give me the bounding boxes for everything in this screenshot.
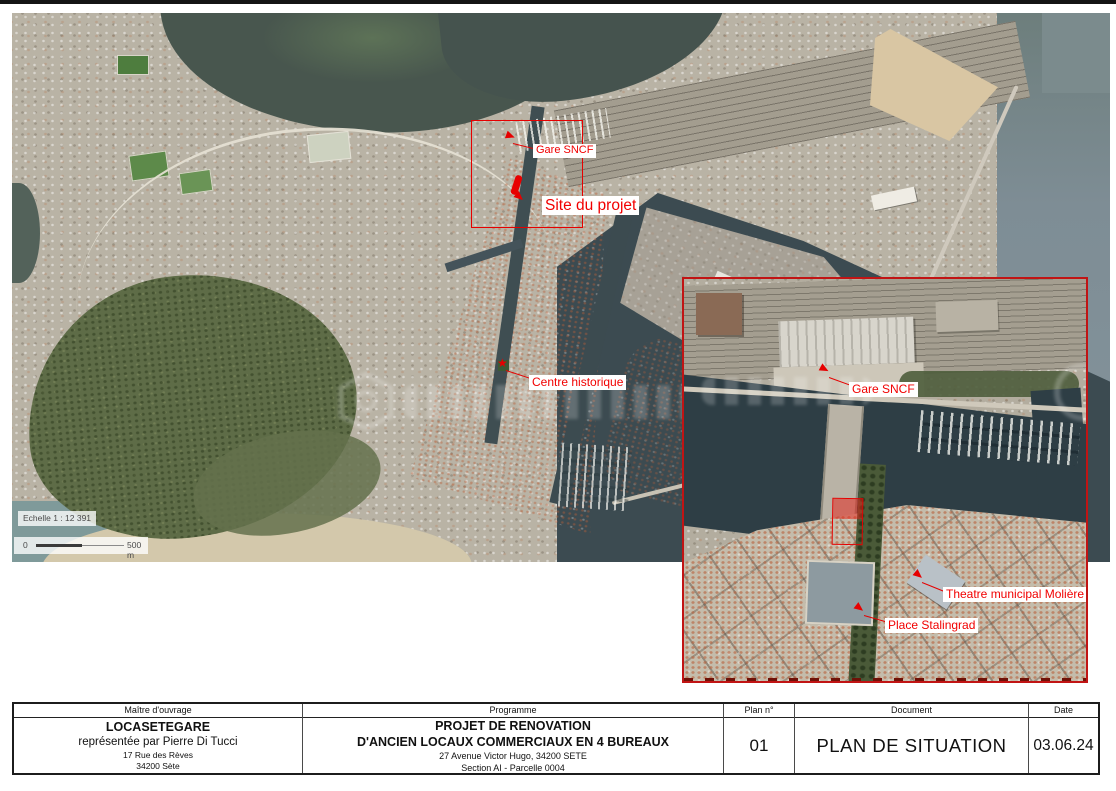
terrain-sports-field-1 xyxy=(117,55,149,75)
scale-bar-zero: 0 xyxy=(23,540,28,550)
maitre-header: Maître d'ouvrage xyxy=(14,704,302,718)
maitre-name: LOCASETEGARE xyxy=(106,720,210,735)
inset-gare-sncf-label: Gare SNCF xyxy=(849,382,918,397)
programme-address: 27 Avenue Victor Hugo, 34200 SETE xyxy=(439,750,587,762)
inset-project-parcel-fill xyxy=(833,499,862,520)
programme-body: PROJET DE RENOVATION D'ANCIEN LOCAUX COM… xyxy=(303,718,723,774)
plan-no-header: Plan n° xyxy=(724,704,794,718)
inset-theatre-label: Theatre municipal Molière xyxy=(943,587,1087,602)
date-value: 03.06.24 xyxy=(1029,718,1098,773)
maitre-address-line1: 17 Rue des Rèves xyxy=(123,750,193,761)
title-col-document: Document PLAN DE SITUATION xyxy=(794,704,1028,773)
title-col-date: Date 03.06.24 xyxy=(1028,704,1098,773)
centre-star-marker: ★ xyxy=(497,357,508,369)
date-header: Date xyxy=(1029,704,1098,718)
gare-sncf-label: Gare SNCF xyxy=(533,144,596,158)
programme-line2: D'ANCIEN LOCAUX COMMERCIAUX EN 4 BUREAUX xyxy=(357,734,669,750)
maitre-body: LOCASETEGARE représentée par Pierre Di T… xyxy=(14,718,302,773)
site-du-projet-label: Site du projet xyxy=(542,196,639,215)
plan-no-value: 01 xyxy=(724,718,794,773)
top-black-bar xyxy=(0,0,1116,4)
inset-watermark-smear xyxy=(702,377,872,405)
programme-line1: PROJET DE RENOVATION xyxy=(435,718,591,734)
document-value: PLAN DE SITUATION xyxy=(795,718,1028,773)
maitre-address-line2: 34200 Sète xyxy=(136,761,179,772)
title-col-maitre: Maître d'ouvrage LOCASETEGARE représenté… xyxy=(14,704,302,773)
inset-detail-map: Gare SNCF Theatre municipal Molière Plac… xyxy=(682,277,1088,683)
watermark-hexagon-logo xyxy=(335,370,397,432)
scale-bar-box: 0 500 m xyxy=(14,537,148,554)
programme-header: Programme xyxy=(303,704,723,718)
inset-depot-building xyxy=(935,300,998,332)
scale-bar-end: 500 m xyxy=(127,540,148,560)
title-block: Maître d'ouvrage LOCASETEGARE représenté… xyxy=(12,702,1100,775)
inset-brown-building xyxy=(696,293,742,335)
document-header: Document xyxy=(795,704,1028,718)
marina-boats-south xyxy=(558,443,632,512)
title-col-programme: Programme PROJET DE RENOVATION D'ANCIEN … xyxy=(302,704,723,773)
terrain-open-sea-corner xyxy=(1042,13,1110,93)
programme-parcel: Section AI - Parcelle 0004 xyxy=(461,762,565,774)
inset-watermark-ring xyxy=(1048,357,1088,427)
centre-historique-label: Centre historique xyxy=(529,375,626,390)
title-col-plan-no: Plan n° 01 xyxy=(723,704,794,773)
inset-station-hall xyxy=(778,317,915,368)
scale-bar-thick-segment xyxy=(36,544,82,547)
scale-ratio-box: Echelle 1 : 12 391 xyxy=(18,511,96,526)
plan-de-situation-page: Gare SNCF Site du projet ★ Centre histor… xyxy=(0,0,1116,791)
inset-bottom-dashes xyxy=(684,678,1086,681)
inset-project-parcel xyxy=(832,498,864,546)
maitre-representative: représentée par Pierre Di Tucci xyxy=(78,735,237,750)
inset-place-stalingrad-label: Place Stalingrad xyxy=(885,618,978,633)
